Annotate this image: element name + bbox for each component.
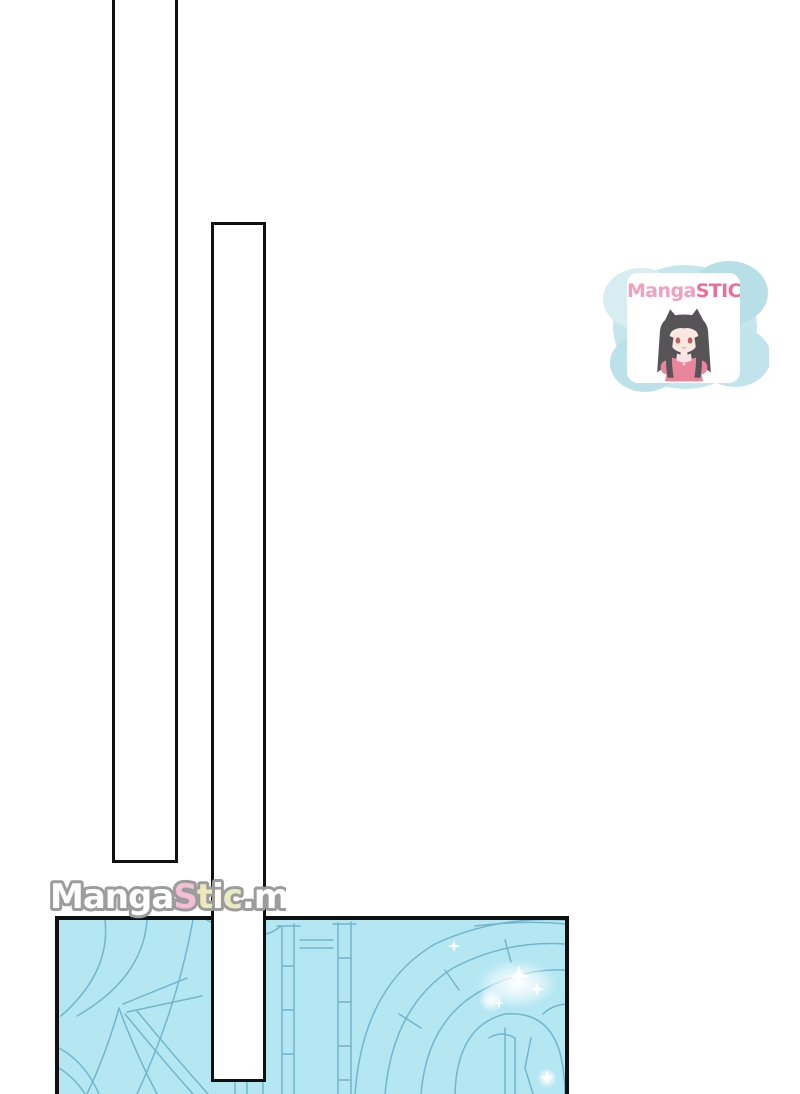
- watermark-letter: c: [223, 877, 242, 917]
- vertical-panel-bar-1: [112, 0, 178, 863]
- watermark-letter: i: [212, 877, 223, 917]
- watermark-letter: m: [254, 877, 286, 917]
- logo-card: MangaSTIC: [627, 273, 740, 383]
- watermark-letter: t: [197, 877, 213, 917]
- logo-brand-text: MangaSTIC: [627, 282, 740, 301]
- watermark-letter: a: [151, 877, 173, 917]
- manga-page: MangaStic.me MangaSTIC: [0, 0, 800, 1094]
- logo-text-manga: Manga: [627, 280, 696, 302]
- cat-girl-mascot-icon: [645, 303, 723, 383]
- watermark-letter: a: [83, 877, 105, 917]
- bottom-art-panel: [55, 916, 569, 1094]
- logo-text-stic: STIC: [696, 280, 740, 302]
- site-watermark: MangaStic.me: [42, 872, 286, 926]
- watermark-letter: g: [128, 877, 151, 917]
- site-watermark-text: MangaStic.me: [50, 877, 286, 917]
- sparkle-icon: [448, 940, 460, 952]
- site-logo-badge: MangaSTIC: [601, 251, 769, 405]
- watermark-letter: S: [173, 877, 197, 917]
- watermark-letter: n: [105, 877, 128, 917]
- watermark-letter: M: [50, 877, 83, 917]
- vertical-panel-bar-2: [211, 222, 266, 1082]
- castle-line-art-illustration: [59, 920, 565, 1094]
- watermark-letter: .: [242, 877, 254, 917]
